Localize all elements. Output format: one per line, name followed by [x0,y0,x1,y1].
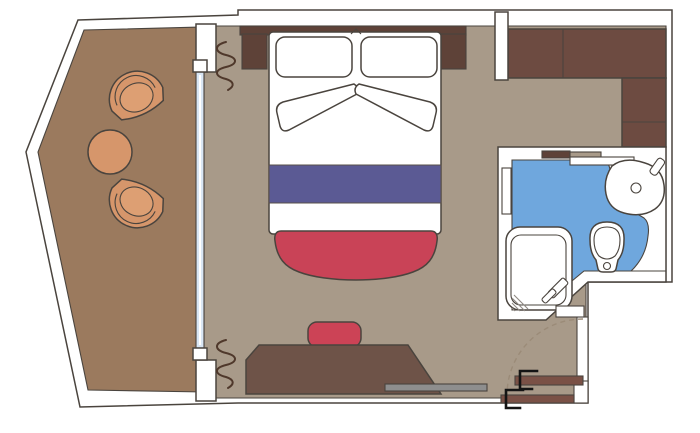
floor-plan-canvas [0,0,700,433]
pillow-left [276,37,352,77]
wall-stub-wardrobe [495,12,508,80]
glass-frame-cap-top [193,60,207,72]
nightstand-right [441,34,466,69]
foot-bench [275,231,438,280]
entrance-door-panel [501,395,574,403]
floor-plan-page [0,0,700,433]
pillow-right [361,37,437,77]
wardrobe-side [622,78,666,147]
glass-frame-cap-bottom [193,348,207,360]
bed-runner [269,165,441,203]
basin-drain [631,183,641,193]
stool [308,322,361,347]
entrance-wall-stub [556,306,584,317]
nightstand-left [242,34,267,69]
tv-shelf-bar [385,384,487,391]
round-coffee-table [88,130,132,174]
bathroom-wall-panel [502,168,511,214]
wall-stub-window-bottom [196,360,216,401]
sliding-door-panel-upper [515,376,583,385]
wardrobe-top [508,29,666,78]
bathroom-sliding-door [542,151,570,158]
toilet-flush-button [604,263,611,270]
